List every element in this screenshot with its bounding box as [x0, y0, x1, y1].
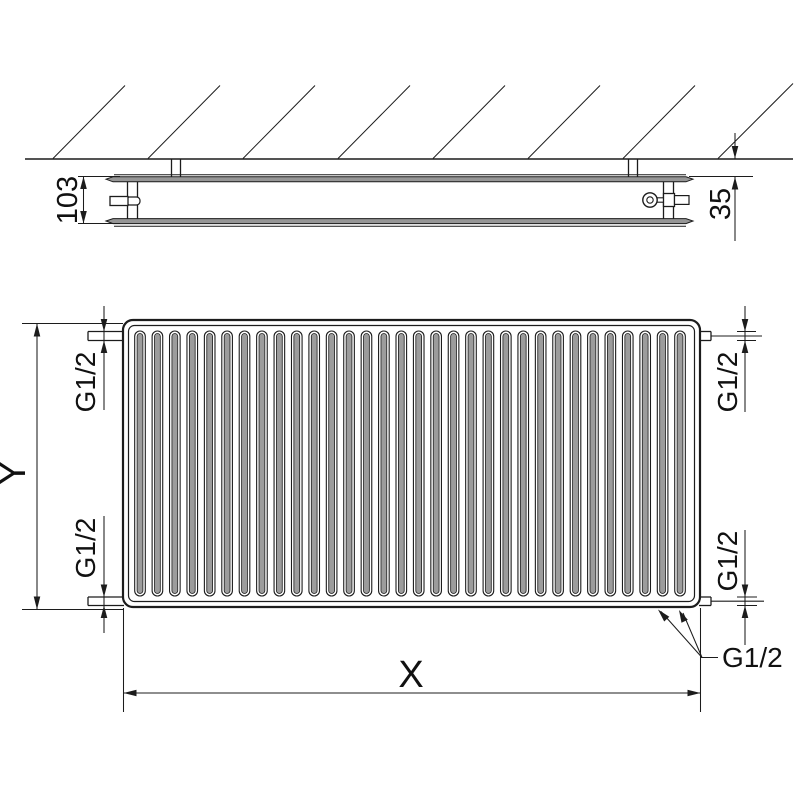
dimension-wall-gap-35: 35 [689, 133, 753, 241]
fin-core [259, 334, 265, 594]
wall-hatching [53, 84, 793, 159]
fin-core [677, 334, 683, 594]
thread-dim-bottom-left: G1/2 [70, 516, 107, 633]
thread-leader-bottom-connections: G1/2 [658, 610, 783, 674]
fin-core [468, 334, 474, 594]
stub-bottom-right [699, 597, 764, 606]
front-view: Y X G1/2 G1/2 G1/2 [0, 306, 783, 712]
valve-insert [643, 193, 689, 207]
stub-top-right [699, 332, 762, 341]
thread-label-bottom-left: G1/2 [70, 518, 101, 579]
fin-core [311, 334, 317, 594]
thread-dim-top-left: G1/2 [70, 306, 107, 412]
fin-core [416, 334, 422, 594]
fin-core [607, 334, 613, 594]
fin-core [398, 334, 404, 594]
radiator-technical-drawing: 103 35 [0, 0, 800, 800]
fin-core [503, 334, 509, 594]
fin-core [590, 334, 596, 594]
fin-core [433, 334, 439, 594]
fin-core [660, 334, 666, 594]
radiator-panels-top-view [106, 175, 693, 226]
fin-core [364, 334, 370, 594]
length-value: X [398, 654, 423, 696]
fin-core [155, 334, 161, 594]
fin-core [573, 334, 579, 594]
thread-dim-top-right: G1/2 [712, 306, 748, 412]
thread-label-bottom-connections: G1/2 [722, 642, 783, 673]
thread-label-bottom-right: G1/2 [712, 531, 743, 592]
depth-value: 103 [52, 176, 84, 224]
fin-core [451, 334, 457, 594]
dimension-height-y: Y [0, 324, 123, 610]
corrugation-fins [135, 331, 686, 596]
fin-core [625, 334, 631, 594]
fin-core [346, 334, 352, 594]
fin-core [381, 334, 387, 594]
front-panel [106, 219, 693, 224]
fin-core [172, 334, 178, 594]
thread-label-top-left: G1/2 [70, 352, 101, 413]
wall-gap-value: 35 [705, 188, 737, 220]
fin-core [224, 334, 230, 594]
dimension-length-x: X [124, 608, 701, 712]
fin-core [294, 334, 300, 594]
back-panel [106, 177, 693, 182]
fin-core [242, 334, 248, 594]
fin-core [642, 334, 648, 594]
thread-label-top-right: G1/2 [712, 352, 743, 413]
stub-bottom-left [88, 597, 124, 606]
thread-dim-bottom-right: G1/2 [712, 530, 748, 645]
fin-core [555, 334, 561, 594]
height-value: Y [0, 460, 34, 485]
fin-core [207, 334, 213, 594]
top-view: 103 35 [25, 84, 793, 242]
fin-core [189, 334, 195, 594]
fin-core [137, 334, 143, 594]
fin-core [538, 334, 544, 594]
drawing-canvas: 103 35 [0, 0, 800, 800]
fin-core [520, 334, 526, 594]
fin-core [486, 334, 492, 594]
fin-core [329, 334, 335, 594]
vent-plug [110, 197, 140, 206]
fin-core [276, 334, 282, 594]
stub-top-left [88, 332, 124, 341]
